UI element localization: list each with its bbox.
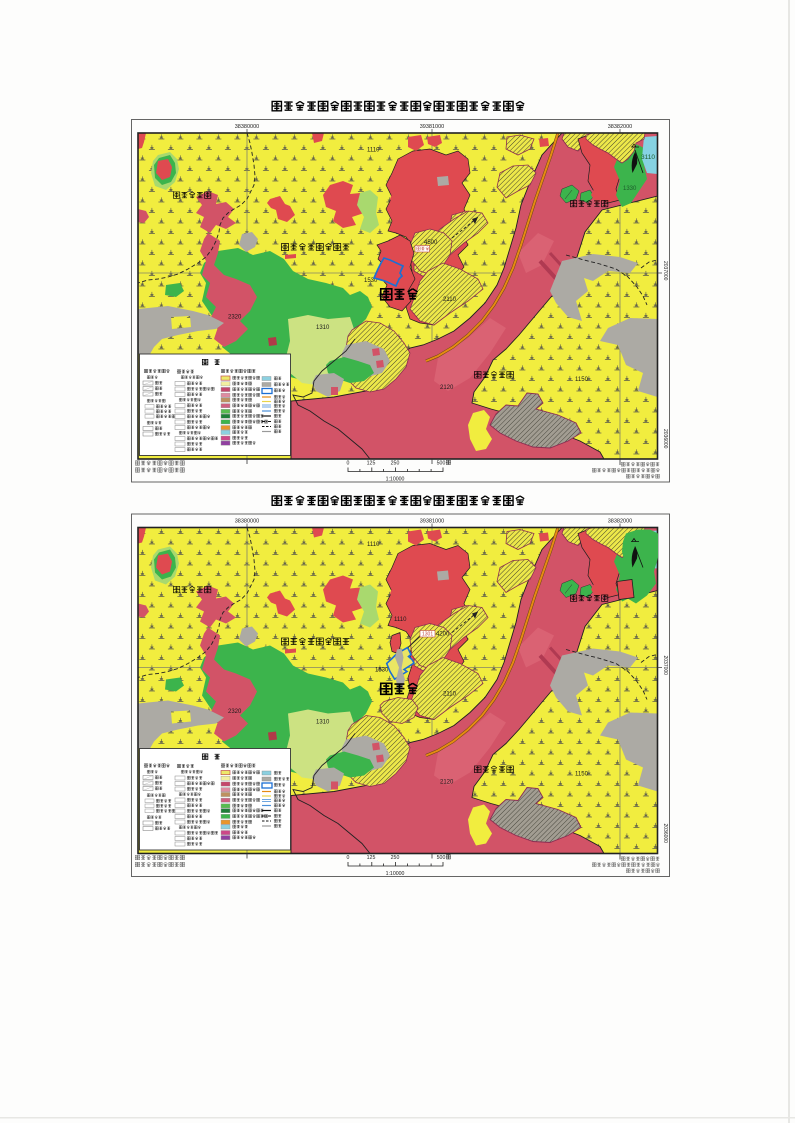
svg-text:4200: 4200: [436, 632, 450, 638]
svg-text:1110: 1110: [394, 617, 407, 623]
svg-text:4500: 4500: [424, 240, 438, 246]
svg-text:1530: 1530: [375, 668, 389, 674]
svg-text:1301: 1301: [422, 632, 433, 638]
